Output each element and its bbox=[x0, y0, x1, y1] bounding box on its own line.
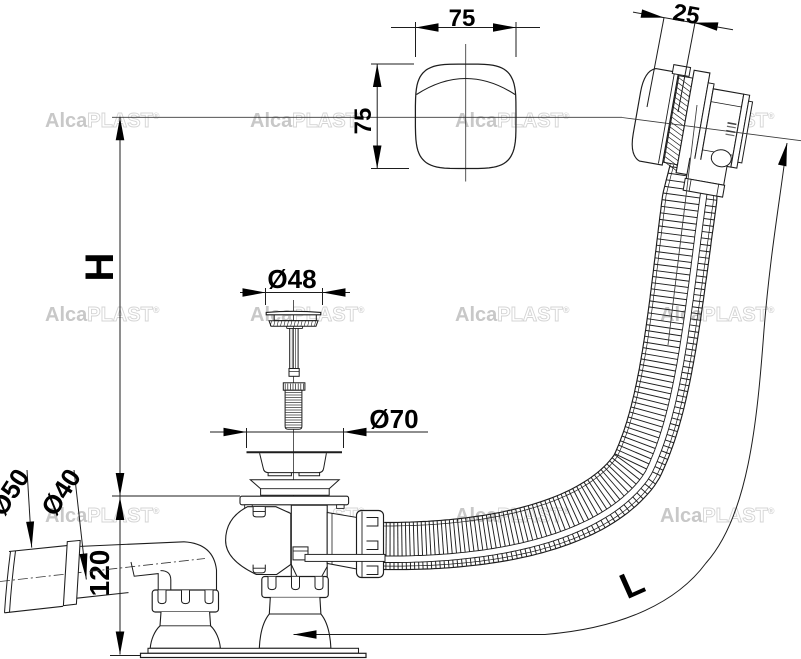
svg-text:AlcaPLAST®: AlcaPLAST® bbox=[45, 110, 160, 132]
svg-text:Ø48: Ø48 bbox=[267, 264, 316, 294]
svg-text:75: 75 bbox=[350, 108, 377, 135]
svg-text:AlcaPLAST®: AlcaPLAST® bbox=[660, 505, 775, 527]
svg-text:Ø70: Ø70 bbox=[369, 404, 418, 434]
svg-text:25: 25 bbox=[671, 0, 702, 30]
svg-text:AlcaPLAST®: AlcaPLAST® bbox=[455, 304, 570, 326]
svg-text:AlcaPLAST®: AlcaPLAST® bbox=[45, 304, 160, 326]
svg-text:120: 120 bbox=[84, 550, 115, 597]
svg-text:AlcaPLAST®: AlcaPLAST® bbox=[250, 110, 365, 132]
svg-text:H: H bbox=[78, 253, 122, 282]
svg-text:75: 75 bbox=[449, 5, 476, 32]
svg-text:AlcaPLAST®: AlcaPLAST® bbox=[455, 110, 570, 132]
